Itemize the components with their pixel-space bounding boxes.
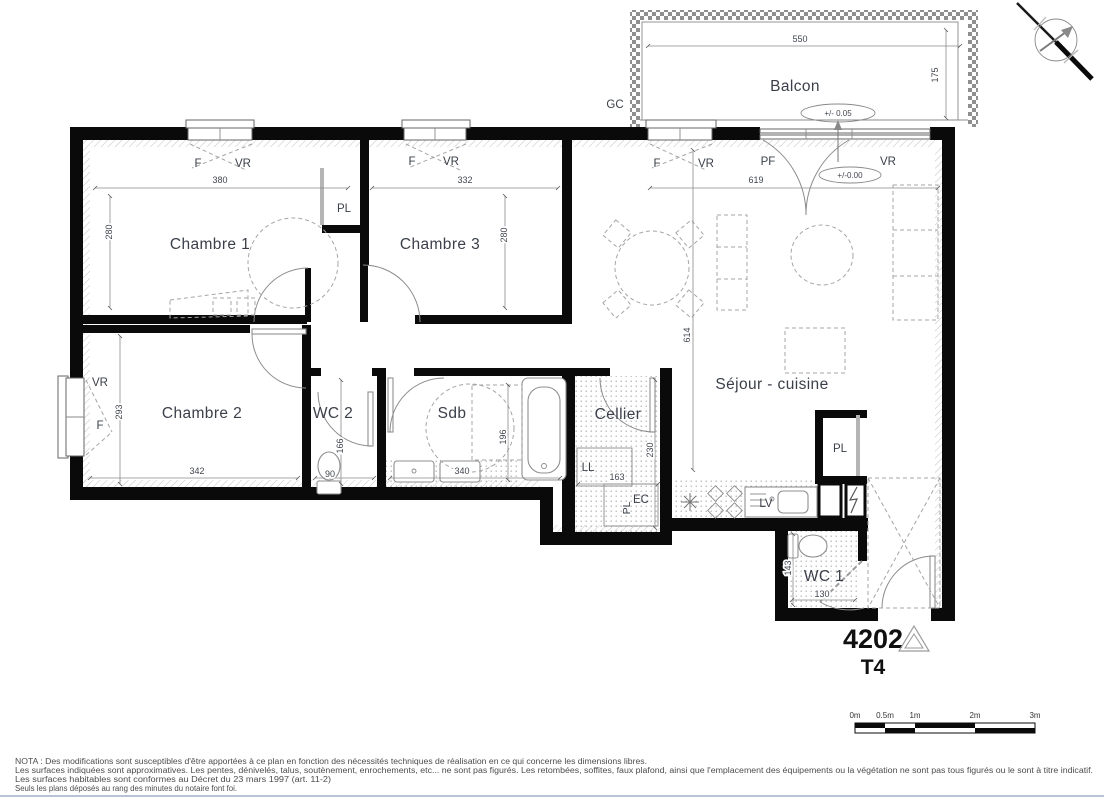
sideboard <box>717 215 747 310</box>
wall-segment <box>466 127 648 140</box>
dim-chambre3-width: 332 <box>457 175 472 185</box>
balcony: 550 175 Balcon +/- 0.05 GC <box>606 10 978 127</box>
wall-segment <box>70 127 83 378</box>
scale-bar: 0m 0.5m 1m 2m 3m <box>849 711 1040 733</box>
door-arc-chambre3 <box>363 265 420 322</box>
dim-sdb-depth: 196 <box>498 429 508 444</box>
triangle-icon <box>899 626 929 651</box>
wall-sdb-cellier-top <box>414 368 610 376</box>
wall-chambre3-hall <box>415 315 570 324</box>
nota-line-2: Les surfaces indiquées sont approximativ… <box>15 766 1093 775</box>
wall-pl-kitchen <box>815 410 823 484</box>
label-vr: VR <box>880 156 896 168</box>
entry-tiling-cross <box>868 478 940 608</box>
washbasin <box>394 461 434 482</box>
room-label-wc1: WC 1 <box>804 568 844 585</box>
toilet-wc2-tank <box>317 481 341 494</box>
dim-chambre1-width: 380 <box>212 175 227 185</box>
dim-sejour-width: 619 <box>748 175 763 185</box>
room-label-cellier: Cellier <box>595 406 642 423</box>
toilet-wc1 <box>799 535 827 557</box>
wall-wc2-top <box>311 368 321 376</box>
rotation-circle-chambre1 <box>248 218 338 308</box>
balcony-checker-border <box>630 10 640 127</box>
wall-wc2-sdb <box>377 368 386 487</box>
title-block: 4202 T4 <box>843 624 929 679</box>
balcony-checker-border <box>630 10 978 20</box>
door-leaf-wc2 <box>368 392 373 446</box>
label-pl-kitchen: PL <box>833 443 848 455</box>
desk-chambre1 <box>170 290 248 318</box>
sliding-door-pl-kitchen <box>856 415 860 476</box>
door-leaf-chambre2 <box>252 329 306 334</box>
wall-pl-niche <box>322 225 369 233</box>
door-leaf-entry <box>930 556 935 608</box>
dim-cellier-depth: 230 <box>645 442 655 457</box>
dim-cellier-width: 163 <box>609 472 624 482</box>
scale-3m: 3m <box>1029 711 1040 720</box>
label-gc: GC <box>606 99 623 111</box>
dim-wc1-width: 130 <box>814 589 829 599</box>
door-arc-chambre1 <box>254 268 308 322</box>
floor-plan-page: 550 175 Balcon +/- 0.05 GC <box>0 0 1104 800</box>
wall-chambre1-chambre3 <box>360 140 369 265</box>
dim-chambre1-depth: 280 <box>104 224 114 239</box>
dim-wc2-depth: 166 <box>335 438 345 453</box>
round-rug <box>791 225 853 285</box>
floor-plan-drawing: 550 175 Balcon +/- 0.05 GC <box>0 0 1104 800</box>
room-label-sdb: Sdb <box>438 405 467 422</box>
sofa <box>893 185 938 320</box>
wall-segment <box>775 608 878 621</box>
label-vr: VR <box>698 158 714 170</box>
level-balcony-text: +/- 0.05 <box>824 109 852 118</box>
wall-segment <box>70 487 553 500</box>
wall-segment <box>252 127 404 140</box>
wall-segment <box>942 140 955 621</box>
unit-type: T4 <box>861 656 886 679</box>
label-pl-chambre1: PL <box>337 203 352 215</box>
technical-cell <box>819 484 841 517</box>
wall-chambre2-hall <box>83 325 250 333</box>
label-ll-washer: LL <box>582 462 595 474</box>
room-label-chambre3: Chambre 3 <box>400 236 480 253</box>
label-f: F <box>653 158 660 170</box>
label-vr: VR <box>92 377 108 389</box>
chair <box>676 290 704 318</box>
sliding-door-pl-chambre1 <box>320 168 324 225</box>
wall-segment <box>540 487 553 545</box>
door-arc-chambre2 <box>252 334 306 388</box>
wall-chambre2-wc2 <box>302 325 311 487</box>
coffee-table <box>785 328 845 373</box>
door-leaf-chambre3 <box>360 265 368 322</box>
door-arc-sdb <box>390 378 444 432</box>
wall-segment <box>930 127 955 140</box>
dim-sdb-width: 340 <box>454 466 469 476</box>
shower-zone-sdb <box>472 385 522 460</box>
label-ec-water-heater: EC <box>633 494 649 506</box>
label-vr: VR <box>235 158 251 170</box>
label-lv-dishwasher: LV <box>759 498 773 510</box>
label-pf: PF <box>761 156 776 168</box>
wall-segment <box>931 608 955 621</box>
level-floor-text: +/-0.00 <box>837 171 863 180</box>
dim-sejour-depth: 614 <box>682 327 692 342</box>
room-label-sejour: Séjour - cuisine <box>715 376 828 393</box>
wall-segment <box>70 127 188 140</box>
dim-chambre2-width: 342 <box>189 466 204 476</box>
room-label-wc2: WC 2 <box>313 405 353 422</box>
dim-chambre3-depth: 280 <box>499 227 509 242</box>
dim-chambre2-depth: 293 <box>114 404 124 419</box>
door-leaf-chambre1 <box>305 268 311 322</box>
kitchen-sink-basin <box>778 491 808 513</box>
dining-table <box>615 231 689 305</box>
chair <box>603 220 631 248</box>
wall-kitchen-wc1 <box>660 518 868 531</box>
scale-1m: 1m <box>909 711 920 720</box>
nota-line-3: Les surfaces habitables sont conformes a… <box>15 775 331 784</box>
label-f: F <box>96 420 103 432</box>
nota-text: NOTA : Des modifications sont susceptibl… <box>0 757 1104 796</box>
bathtub-inner <box>528 387 560 473</box>
dim-wc2-width: 90 <box>325 469 335 479</box>
scale-05m: 0.5m <box>876 711 894 720</box>
chair <box>603 290 631 318</box>
room-label-chambre1: Chambre 1 <box>170 236 250 253</box>
nota-line-1: NOTA : Des modifications sont susceptibl… <box>15 757 647 766</box>
north-arrow-icon <box>1017 3 1092 79</box>
balcony-checker-border <box>968 10 978 127</box>
label-vr: VR <box>443 156 459 168</box>
label-pl-cellier: PL <box>621 501 633 514</box>
dim-balcony-width: 550 <box>792 34 807 44</box>
door-arc-entry <box>882 556 934 608</box>
room-label-balcon: Balcon <box>770 78 820 95</box>
dim-balcony-depth: 175 <box>930 67 940 82</box>
entry-direction-arrow <box>834 120 842 130</box>
unit-number: 4202 <box>843 624 903 654</box>
label-f: F <box>194 158 201 170</box>
room-label-chambre2: Chambre 2 <box>162 405 242 422</box>
label-f: F <box>408 156 415 168</box>
scale-0m: 0m <box>849 711 860 720</box>
nota-line-4: Seuls les plans déposés au rang des minu… <box>15 784 237 793</box>
door-arc-pf-left <box>763 140 806 215</box>
dim-wc1-depth: 143 <box>783 560 793 575</box>
door-leaf-cellier <box>650 378 655 432</box>
scale-2m: 2m <box>969 711 980 720</box>
wall-chambre1-hall <box>83 315 307 324</box>
wall-segment <box>712 127 760 140</box>
wall-chambre3-sejour <box>562 140 572 324</box>
wall-wc1-entry <box>858 531 867 561</box>
